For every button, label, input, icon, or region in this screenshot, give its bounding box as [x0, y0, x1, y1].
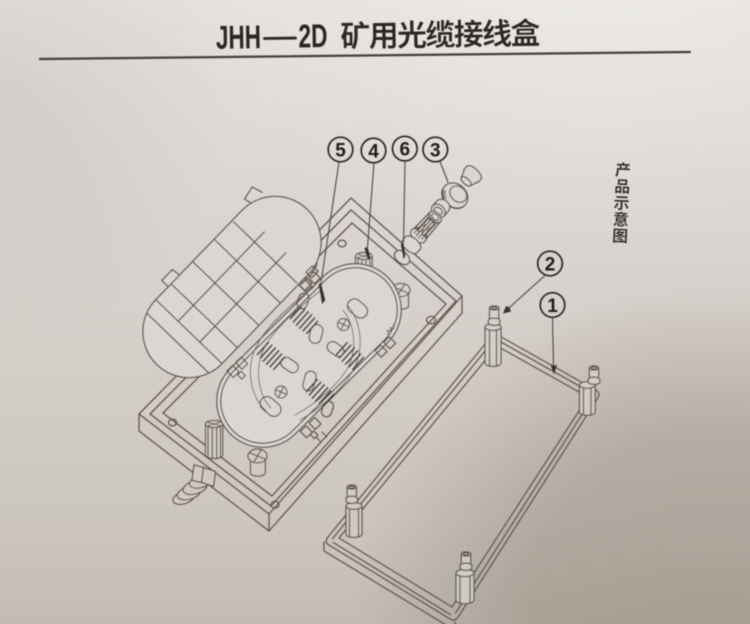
- svg-text:4: 4: [368, 142, 379, 163]
- svg-text:2D: 2D: [298, 17, 328, 54]
- svg-text:1: 1: [547, 296, 558, 317]
- svg-text:2: 2: [545, 255, 556, 276]
- svg-text:JHH: JHH: [216, 18, 262, 56]
- svg-text:6: 6: [400, 140, 411, 161]
- svg-text:3: 3: [430, 141, 441, 162]
- svg-text:5: 5: [335, 141, 346, 162]
